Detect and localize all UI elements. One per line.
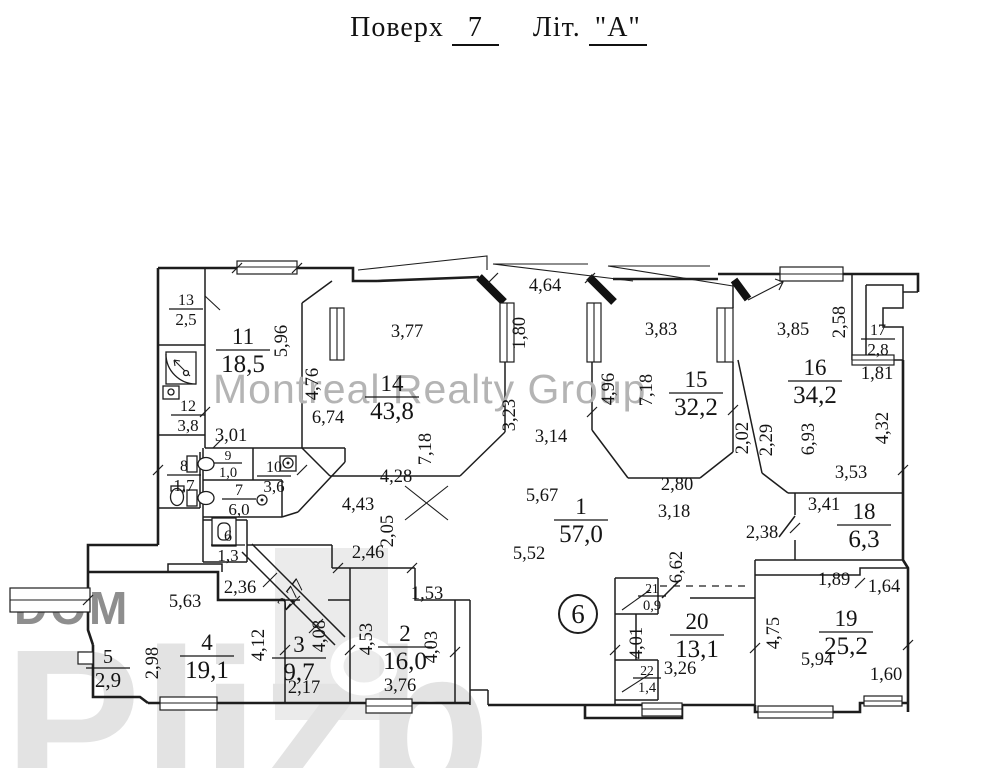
room-area-15: 32,2 bbox=[674, 394, 718, 421]
dimension-label: 7,18 bbox=[637, 374, 657, 406]
dimension-label: 2,29 bbox=[757, 424, 777, 456]
room-area-11: 18,5 bbox=[221, 351, 265, 378]
dimension-label: 4,01 bbox=[627, 627, 647, 659]
room-number-2: 2 bbox=[399, 621, 411, 646]
dimension-label: 1,64 bbox=[868, 577, 900, 597]
room-area-13: 2,5 bbox=[175, 310, 196, 329]
dimension-label: 3,26 bbox=[664, 659, 696, 679]
dimension-label: 5,96 bbox=[272, 325, 292, 357]
dimension-label: 4,43 bbox=[342, 495, 374, 515]
room-number-17: 17 bbox=[870, 322, 886, 339]
room-area-10: 3,6 bbox=[263, 477, 284, 496]
room-number-21: 21 bbox=[645, 581, 659, 596]
dimension-label: 1,80 bbox=[510, 317, 530, 349]
dimension-label: 2,38 bbox=[746, 523, 778, 543]
room-area-2: 16,0 bbox=[383, 648, 427, 675]
room-number-16: 16 bbox=[804, 355, 827, 380]
dimension-label: 2,46 bbox=[352, 543, 384, 563]
room-number-19: 19 bbox=[835, 606, 858, 631]
dimension-label: 4,28 bbox=[380, 467, 412, 487]
room-area-22: 1,4 bbox=[638, 680, 657, 696]
dimension-label: 2,80 bbox=[661, 475, 693, 495]
room-number-13: 13 bbox=[178, 292, 194, 309]
room-number-12: 12 bbox=[180, 398, 196, 415]
room-number-7: 7 bbox=[235, 482, 243, 499]
dimension-label: 4,76 bbox=[303, 368, 323, 400]
room-number-6: 6 bbox=[224, 528, 232, 545]
dimension-label: 2,36 bbox=[224, 578, 256, 598]
vent-icon bbox=[257, 495, 267, 505]
sink-icon bbox=[163, 386, 179, 399]
room-area-7: 6,0 bbox=[228, 500, 249, 519]
floor-plan-page: Поверх 7 Літ. "А" Plizb DOM bbox=[0, 0, 997, 768]
room-area-5: 2,9 bbox=[95, 668, 121, 692]
dimension-label: 3,53 bbox=[835, 463, 867, 483]
dimension-label: 3,85 bbox=[777, 320, 809, 340]
room-area-14: 43,8 bbox=[370, 398, 414, 425]
dimension-label: 5,67 bbox=[526, 486, 558, 506]
room-number-15: 15 bbox=[685, 367, 708, 392]
room-number-22: 22 bbox=[640, 663, 654, 678]
dimension-label: 4,96 bbox=[599, 373, 619, 405]
room-area-6: 1,3 bbox=[217, 546, 238, 565]
room-number-3: 3 bbox=[293, 632, 305, 657]
dimension-label: 5,94 bbox=[801, 650, 833, 670]
room-area-1: 57,0 bbox=[559, 521, 603, 548]
dimension-label: 3,76 bbox=[384, 676, 416, 696]
dimension-label: 3,18 bbox=[658, 502, 690, 522]
dimension-label: 2,02 bbox=[733, 422, 753, 454]
dimension-label: 1,53 bbox=[411, 584, 443, 604]
room-number-10: 10 bbox=[266, 459, 282, 476]
room-area-21: 0,9 bbox=[643, 598, 661, 614]
dimension-label: 3,83 bbox=[645, 320, 677, 340]
dimension-label: 4,12 bbox=[249, 629, 269, 661]
room-number-1: 1 bbox=[575, 494, 587, 519]
dimension-label: 2,17 bbox=[288, 678, 320, 698]
dimension-label: 6,74 bbox=[312, 408, 344, 428]
vent-icon bbox=[280, 456, 296, 471]
room-number-18: 18 bbox=[853, 499, 876, 524]
dimension-label: 7,18 bbox=[416, 433, 436, 465]
dimension-label: 6,62 bbox=[667, 551, 687, 583]
room-area-17: 2,8 bbox=[867, 340, 888, 359]
room-number-11: 11 bbox=[232, 324, 254, 349]
room-number-4: 4 bbox=[201, 630, 213, 655]
stair-badge-number: 6 bbox=[571, 599, 585, 629]
floor-plan-canvas: Plizb DOM bbox=[0, 0, 997, 768]
room-number-5: 5 bbox=[103, 646, 113, 668]
stair-badge: 6 bbox=[559, 595, 597, 633]
dimension-label: 4,64 bbox=[529, 276, 561, 296]
dimension-label: 4,32 bbox=[873, 412, 893, 444]
dimension-label: 3,14 bbox=[535, 427, 567, 447]
dimension-label: 1,81 bbox=[861, 364, 893, 384]
dimension-label: 3,77 bbox=[391, 322, 423, 342]
dimension-label: 4,75 bbox=[764, 617, 784, 649]
room-area-9: 1,0 bbox=[219, 465, 237, 481]
room-area-12: 3,8 bbox=[177, 416, 198, 435]
room-number-14: 14 bbox=[381, 371, 405, 396]
dimension-labels: 4,645,963,771,803,833,852,581,814,766,74… bbox=[143, 276, 902, 698]
room-area-4: 19,1 bbox=[185, 657, 229, 684]
dimension-label: 1,89 bbox=[818, 570, 850, 590]
room-area-18: 6,3 bbox=[848, 526, 879, 553]
dimension-label: 3,41 bbox=[808, 495, 840, 515]
room-area-8: 1,7 bbox=[173, 476, 195, 495]
dimension-label: 4,03 bbox=[422, 631, 442, 663]
dimension-label: 2,58 bbox=[830, 306, 850, 338]
dimension-label: 6,93 bbox=[799, 423, 819, 455]
dimension-label: 3,01 bbox=[215, 426, 247, 446]
dimension-label: 5,63 bbox=[169, 592, 201, 612]
dimension-label: 4,08 bbox=[310, 620, 330, 652]
dimension-label: 2,98 bbox=[143, 647, 163, 679]
room-number-8: 8 bbox=[180, 458, 188, 475]
dimension-label: 5,52 bbox=[513, 544, 545, 564]
dimension-label: 3,23 bbox=[500, 399, 520, 431]
dimension-label: 4,53 bbox=[357, 623, 377, 655]
room-number-9: 9 bbox=[225, 448, 232, 463]
dimension-label: 1,60 bbox=[870, 665, 902, 685]
room-number-20: 20 bbox=[686, 609, 709, 634]
watermark-agency: Montreal Realty Group bbox=[213, 366, 646, 412]
room-area-16: 34,2 bbox=[793, 382, 837, 409]
corner-wedges bbox=[479, 277, 748, 302]
shower-icon bbox=[166, 352, 196, 384]
